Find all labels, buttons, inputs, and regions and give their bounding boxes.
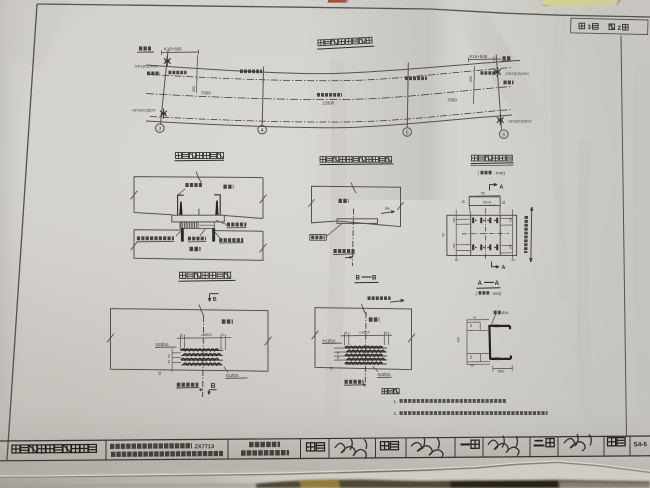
svg-text:A: A xyxy=(500,185,504,191)
svg-text:50: 50 xyxy=(336,351,340,355)
svg-text:N2Ø16: N2Ø16 xyxy=(378,372,392,377)
svg-text:6: 6 xyxy=(502,133,505,139)
svg-text:50: 50 xyxy=(512,258,516,262)
svg-text:50: 50 xyxy=(336,356,340,360)
svg-text:50: 50 xyxy=(167,360,171,364)
svg-text:B: B xyxy=(372,274,377,281)
svg-text:GPZ(KZ)4SX: GPZ(KZ)4SX xyxy=(135,64,159,69)
svg-text:B: B xyxy=(213,297,217,303)
svg-text:B: B xyxy=(356,274,361,281)
svg-text:: mm): : mm) xyxy=(494,171,506,176)
svg-text:K16+685: K16+685 xyxy=(164,47,182,52)
svg-text:150: 150 xyxy=(508,217,512,222)
svg-text:550: 550 xyxy=(469,76,473,82)
svg-text:: mm): : mm) xyxy=(491,291,503,296)
svg-text:50: 50 xyxy=(462,200,466,204)
svg-text:150: 150 xyxy=(508,244,512,249)
svg-text:A: A xyxy=(502,265,506,271)
svg-text:N2Ø16: N2Ø16 xyxy=(156,342,170,347)
svg-text:7000: 7000 xyxy=(201,91,211,96)
svg-text:Ø16: Ø16 xyxy=(502,311,509,315)
svg-text:50: 50 xyxy=(167,354,171,358)
svg-text:13300: 13300 xyxy=(322,101,335,106)
svg-text:150: 150 xyxy=(457,337,461,343)
svg-text:2.: 2. xyxy=(394,411,398,416)
svg-text:50: 50 xyxy=(471,364,475,368)
svg-text:5: 5 xyxy=(345,331,347,335)
svg-text:GPZ(KZ)8DX: GPZ(KZ)8DX xyxy=(132,108,156,113)
svg-text:50: 50 xyxy=(473,316,477,320)
svg-text:50: 50 xyxy=(455,258,459,262)
svg-text:500: 500 xyxy=(498,370,504,374)
svg-text:50: 50 xyxy=(469,324,473,328)
svg-text:550: 550 xyxy=(192,86,196,92)
svg-text:7000: 7000 xyxy=(447,98,457,103)
svg-text:150: 150 xyxy=(452,243,456,248)
svg-text:N1Ø16: N1Ø16 xyxy=(226,373,240,378)
svg-text:150: 150 xyxy=(452,217,456,222)
svg-text:50: 50 xyxy=(158,371,162,375)
svg-text:1.: 1. xyxy=(394,399,398,404)
svg-text:54: 54 xyxy=(441,233,445,237)
svg-text:50×4: 50×4 xyxy=(483,201,491,205)
svg-text:5: 5 xyxy=(222,333,224,337)
svg-text:N1Ø16: N1Ø16 xyxy=(323,338,337,343)
svg-text:GPZ(KZ)4SX: GPZ(KZ)4SX xyxy=(506,71,530,76)
svg-text:ZX7713: ZX7713 xyxy=(195,444,215,450)
svg-text:K16+945: K16+945 xyxy=(470,54,488,59)
svg-text:A: A xyxy=(478,280,483,287)
svg-text:GPZ(KZ)4DX: GPZ(KZ)4DX xyxy=(508,119,532,124)
svg-text:2: 2 xyxy=(618,25,622,32)
svg-text:3: 3 xyxy=(588,24,592,31)
svg-text:50: 50 xyxy=(330,366,334,370)
svg-text:50: 50 xyxy=(502,200,506,204)
svg-text:5: 5 xyxy=(406,130,409,136)
svg-text:S4-5: S4-5 xyxy=(634,441,648,448)
svg-text:50: 50 xyxy=(469,355,473,359)
svg-text:50: 50 xyxy=(481,192,485,196)
svg-text:5: 5 xyxy=(181,333,183,337)
svg-text:4: 4 xyxy=(261,128,264,134)
svg-text:n1Ø10: n1Ø10 xyxy=(360,331,370,335)
svg-text:i%: i% xyxy=(385,206,390,211)
svg-text:3: 3 xyxy=(158,127,161,133)
svg-text:5: 5 xyxy=(385,331,387,335)
svg-text:B: B xyxy=(211,383,216,390)
svg-text:A: A xyxy=(495,280,500,287)
